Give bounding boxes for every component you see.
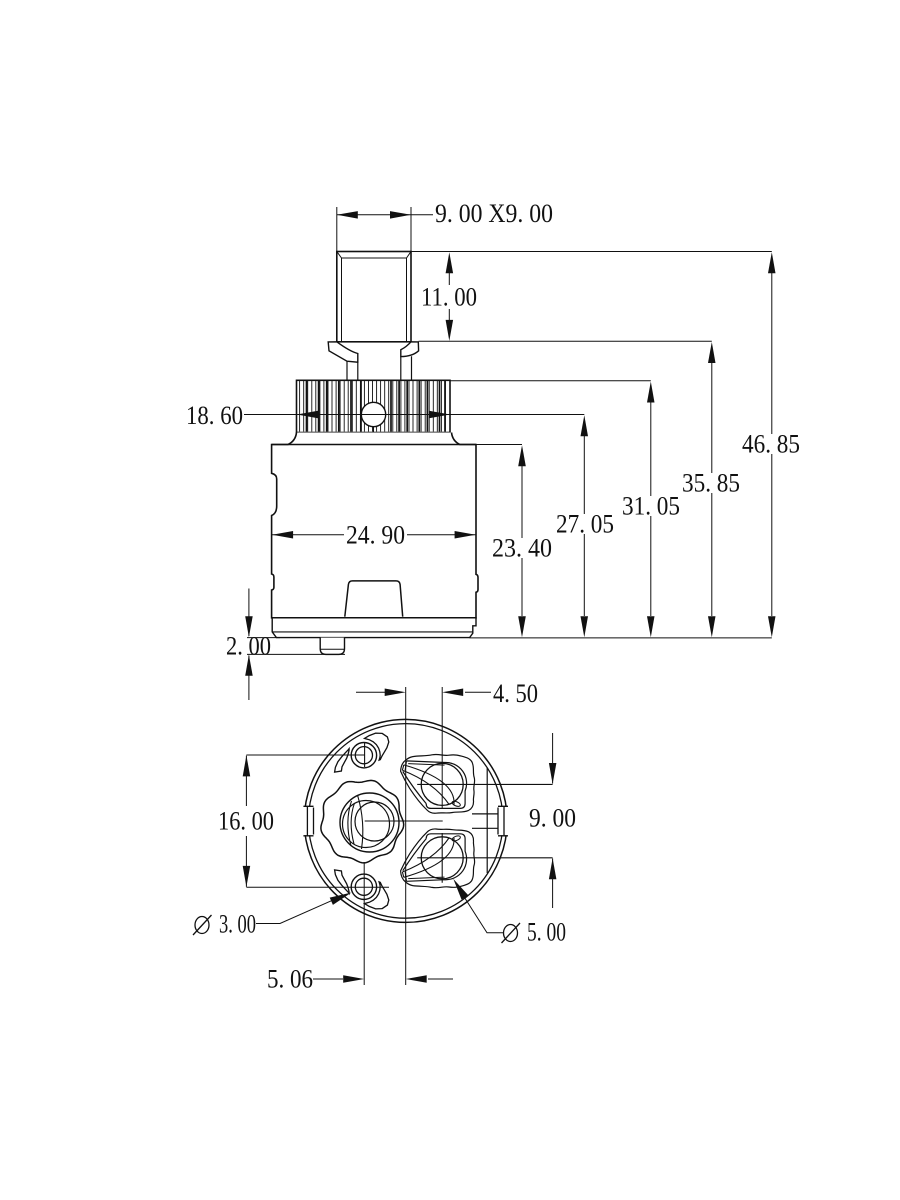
- svg-text:35. 85: 35. 85: [682, 469, 740, 498]
- svg-text:23. 40: 23. 40: [492, 534, 552, 563]
- svg-text:24. 90: 24. 90: [346, 520, 405, 549]
- svg-text:31. 05: 31. 05: [622, 492, 680, 521]
- svg-text:9. 00: 9. 00: [529, 804, 576, 833]
- svg-text:11. 00: 11. 00: [421, 283, 477, 312]
- svg-text:3. 00: 3. 00: [219, 910, 256, 939]
- svg-text:9. 00 X9. 00: 9. 00 X9. 00: [435, 199, 553, 228]
- svg-text:5. 06: 5. 06: [267, 965, 313, 994]
- svg-text:16. 00: 16. 00: [218, 806, 274, 835]
- svg-text:27. 05: 27. 05: [556, 510, 614, 539]
- svg-text:2. 00: 2. 00: [226, 632, 271, 661]
- svg-text:18. 60: 18. 60: [186, 401, 243, 430]
- svg-text:4. 50: 4. 50: [493, 679, 538, 708]
- svg-text:5. 00: 5. 00: [527, 918, 566, 947]
- svg-text:46. 85: 46. 85: [742, 430, 800, 459]
